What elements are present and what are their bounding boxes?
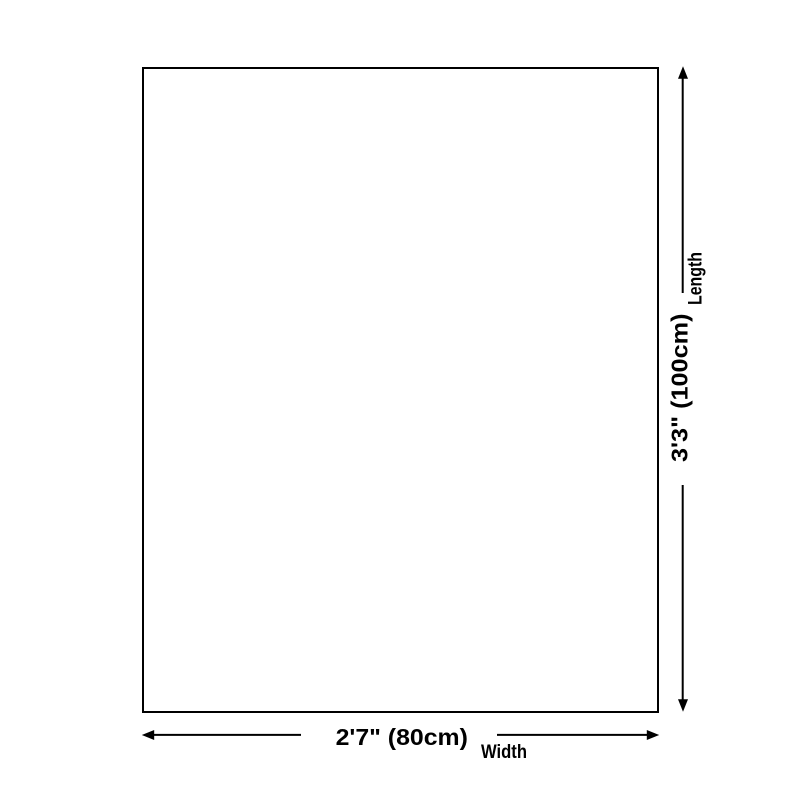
svg-text:Length: Length xyxy=(686,252,707,305)
svg-text:2'7" (80cm): 2'7" (80cm) xyxy=(336,724,468,750)
svg-text:3'3" (100cm): 3'3" (100cm) xyxy=(667,314,693,463)
svg-text:Width: Width xyxy=(481,742,527,763)
